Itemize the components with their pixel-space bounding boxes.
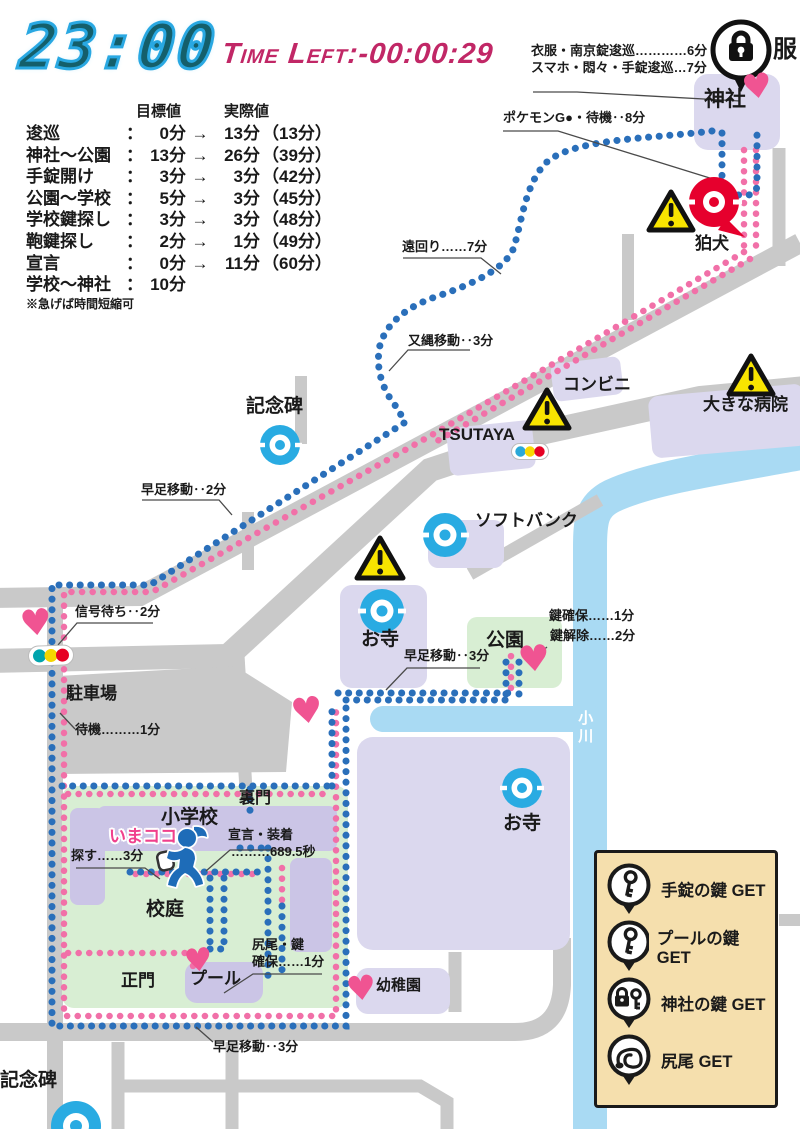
note-standby: 待機………1分: [75, 723, 160, 738]
pokestop-icon: [48, 1098, 104, 1129]
table-row: 鞄鍵探し：2分→1分（49分）: [26, 227, 332, 249]
label-schoolyard: 校庭: [146, 899, 184, 921]
table-row: 神社～公園：13分→26分（39分）: [26, 141, 332, 163]
column-header-target: 目標値: [136, 100, 181, 121]
label-kindergarten: 幼稚園: [376, 977, 421, 994]
label-shrine: 神社: [704, 88, 746, 112]
note-tail-key-2: 確保……1分: [252, 955, 324, 970]
note-phone-handcuff: スマホ・悶々・手錠逡巡…7分: [531, 61, 707, 76]
label-guardian-dog: 狛犬: [695, 234, 729, 254]
column-header-actual: 実際値: [224, 100, 269, 121]
time-left-readout: Time Left:-00:00:29: [220, 38, 495, 71]
tail-icon: [605, 1034, 653, 1086]
key-icon: [605, 863, 653, 915]
label-parking-lot: 駐車場: [66, 684, 117, 704]
label-main-gate: 正門: [121, 971, 155, 991]
legend-box: 手錠の鍵 GET プールの鍵 GET 神社の鍵 GET 尻尾 GET: [594, 850, 778, 1108]
runner-icon: [152, 822, 216, 898]
label-monument-bottom: 記念碑: [0, 1070, 57, 1092]
heart-icon: ♥: [289, 692, 326, 732]
note-key-unlock: 鍵解除……2分: [550, 629, 635, 644]
pokestop-icon: [257, 422, 303, 468]
key-icon: [605, 920, 649, 972]
warning-icon: [646, 188, 696, 236]
heart-icon: ♥: [740, 68, 775, 106]
traffic-light-icon: [511, 443, 549, 460]
table-row: 逡巡：0分→13分（13分）: [26, 119, 332, 141]
heart-icon: ♥: [516, 641, 551, 680]
label-clothes: 服: [773, 36, 797, 64]
label-back-gate: 裏門: [239, 790, 271, 808]
legend-item: 神社の鍵 GET: [605, 977, 767, 1029]
label-stream: 小川: [576, 710, 593, 746]
legend-item: 手錠の鍵 GET: [605, 863, 767, 915]
heart-icon: ♥: [344, 970, 378, 1007]
lock-key-icon: [605, 977, 653, 1029]
pokestop-icon: [420, 510, 470, 560]
traffic-light-icon: [28, 644, 75, 667]
table-row: 学校鍵探し：3分→3分（48分）: [26, 205, 332, 227]
note-declare-time: ………689.5秒: [231, 845, 316, 860]
note-fastwalk-park: 早足移動‥3分: [404, 649, 489, 664]
heart-icon: ♥: [18, 604, 54, 643]
note-fastwalk-2: 早足移動‥2分: [141, 483, 226, 498]
legend-item: プールの鍵 GET: [605, 920, 767, 972]
label-tsutaya: TSUTAYA: [439, 425, 515, 445]
label-convenience-store: コンビニ: [563, 375, 631, 395]
note-pokemon-wait: ポケモンG●・待機‥8分: [503, 111, 645, 126]
note-key-secure: 鍵確保……1分: [549, 609, 634, 624]
table-row: 公園～学校：5分→3分（45分）: [26, 184, 332, 206]
note-detour: 遠回り……7分: [402, 240, 487, 255]
parking-lot-area: [58, 666, 292, 774]
label-big-hospital: 大きな病院: [703, 395, 788, 415]
label-temple-lower: お寺: [503, 813, 541, 835]
note-signal-wait: 信号待ち‥2分: [75, 605, 160, 620]
label-softbank: ソフトバンク: [475, 511, 578, 531]
table-row: 宣言：0分→11分（60分）: [26, 249, 332, 271]
note-tail-key-1: 尻尾・鍵: [252, 938, 304, 953]
legend-item: 尻尾 GET: [605, 1034, 767, 1086]
label-temple-upper: お寺: [361, 629, 399, 651]
digital-clock: 23:00: [16, 10, 220, 83]
note-rope-move: 又縄移動‥3分: [408, 334, 493, 349]
label-monument-top: 記念碑: [246, 396, 303, 418]
table-row: 手錠開け：3分→3分（42分）: [26, 162, 332, 184]
note-fastwalk-bottom: 早足移動‥3分: [213, 1040, 298, 1055]
route-map-page: 23:00 Time Left:-00:00:29 目標値 実際値 逡巡：0分→…: [0, 0, 800, 1129]
warning-icon: [354, 534, 406, 584]
schedule-table: 逡巡：0分→13分（13分） 神社～公園：13分→26分（39分） 手錠開け：3…: [26, 119, 332, 312]
note-search: 探す……3分: [71, 849, 143, 864]
note-declare-equip: 宣言・装着: [228, 828, 293, 843]
warning-icon: [726, 352, 776, 400]
pokestop-icon: [499, 765, 545, 811]
label-pool: プール: [190, 969, 241, 989]
schedule-note: ※急げば時間短縮可: [26, 295, 332, 312]
note-clothes-padlock: 衣服・南京錠逡巡…………6分: [531, 44, 707, 59]
